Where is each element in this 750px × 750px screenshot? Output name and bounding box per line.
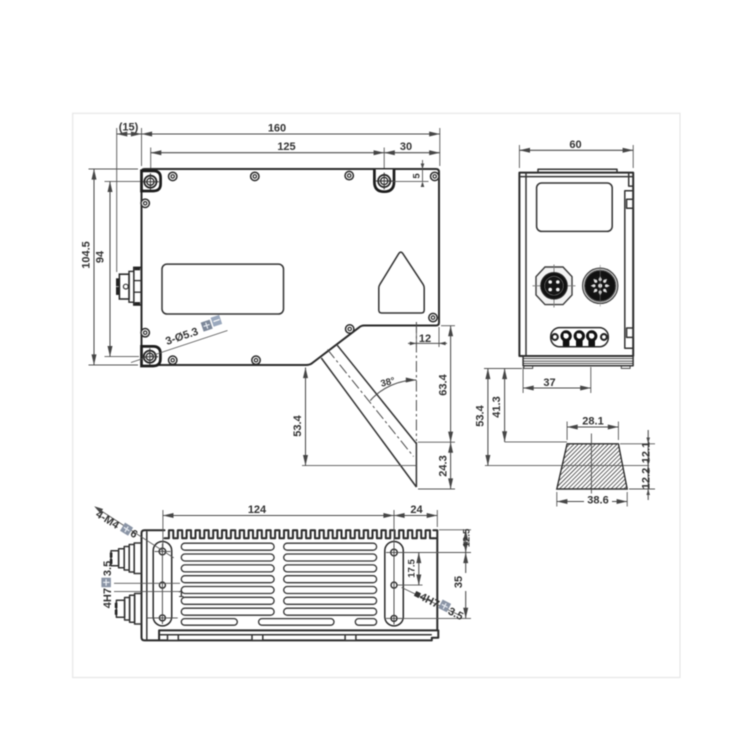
svg-text:4H7: 4H7 — [102, 588, 114, 608]
svg-text:35: 35 — [453, 576, 465, 588]
svg-text:12.1: 12.1 — [641, 442, 653, 463]
svg-text:63.4: 63.4 — [438, 373, 450, 395]
svg-text:124: 124 — [248, 504, 267, 516]
svg-text:3.5: 3.5 — [102, 561, 114, 576]
svg-text:28.1: 28.1 — [582, 416, 603, 428]
svg-text:12.5: 12.5 — [461, 528, 472, 547]
svg-text:53.4: 53.4 — [475, 404, 487, 426]
svg-text:24.3: 24.3 — [438, 455, 450, 476]
svg-text:12: 12 — [419, 333, 431, 345]
svg-text:5: 5 — [412, 173, 423, 179]
svg-text:37: 37 — [543, 377, 555, 389]
svg-text:17.5: 17.5 — [407, 559, 418, 578]
svg-text:38.6: 38.6 — [587, 495, 608, 507]
svg-text:104.5: 104.5 — [81, 241, 93, 269]
svg-text:30: 30 — [400, 141, 412, 153]
svg-text:125: 125 — [277, 141, 295, 153]
svg-text:53.4: 53.4 — [292, 414, 304, 436]
svg-text:12.2: 12.2 — [641, 468, 653, 489]
svg-text:(15): (15) — [119, 122, 139, 134]
svg-text:24: 24 — [410, 504, 423, 516]
svg-text:160: 160 — [268, 123, 286, 135]
svg-text:1: 1 — [179, 589, 185, 600]
svg-text:94: 94 — [95, 250, 107, 263]
svg-text:41.3: 41.3 — [491, 396, 503, 417]
svg-text:60: 60 — [569, 139, 581, 151]
